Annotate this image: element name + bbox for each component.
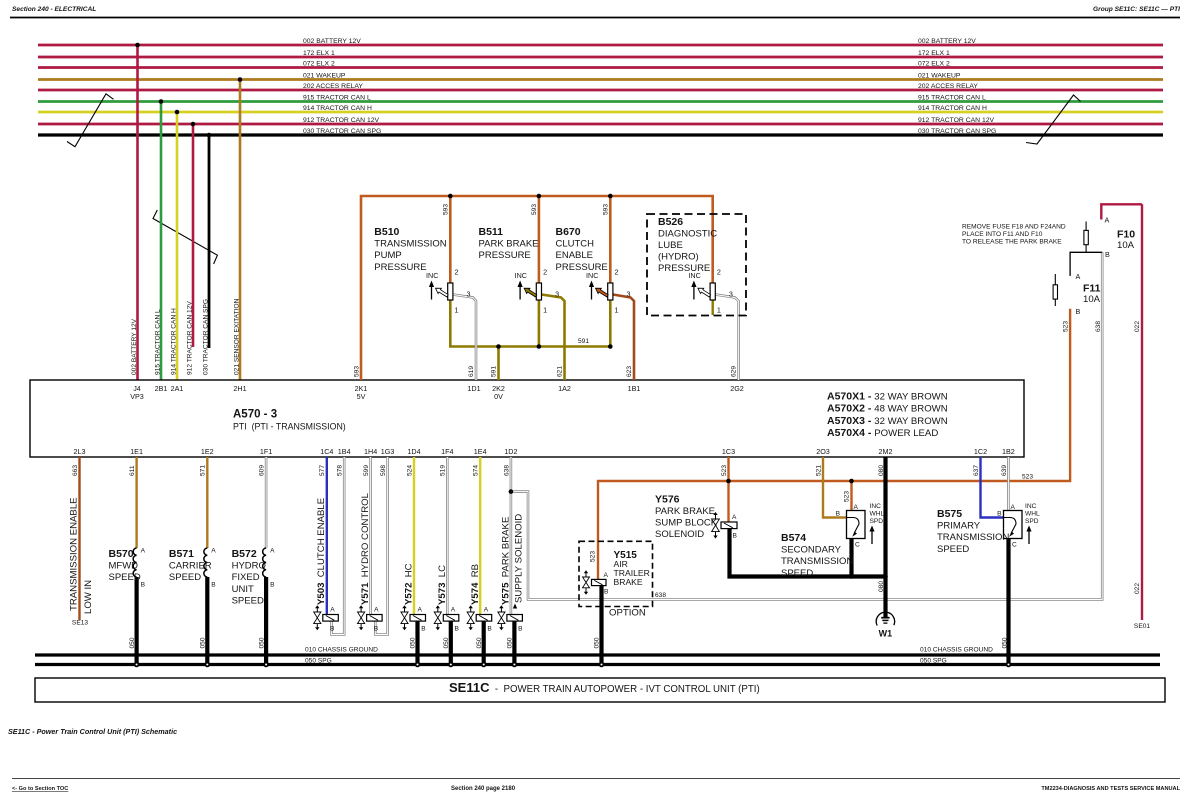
svg-text:1C4: 1C4 bbox=[320, 447, 333, 456]
svg-text:Y576: Y576 bbox=[655, 494, 680, 506]
svg-text:2O3: 2O3 bbox=[816, 447, 830, 456]
svg-text:Y572 HC: Y572 HC bbox=[404, 563, 415, 605]
svg-text:2L3: 2L3 bbox=[74, 447, 86, 456]
svg-text:B: B bbox=[733, 533, 738, 540]
svg-text:523: 523 bbox=[721, 465, 728, 476]
svg-text:10A: 10A bbox=[1117, 240, 1135, 251]
svg-text:OPTION: OPTION bbox=[609, 608, 646, 619]
svg-text:1F1: 1F1 bbox=[260, 447, 272, 456]
svg-text:B: B bbox=[997, 511, 1002, 518]
svg-text:B: B bbox=[487, 626, 492, 633]
svg-text:PLACE INTO F11 AND F10: PLACE INTO F11 AND F10 bbox=[962, 231, 1043, 238]
svg-text:PRIMARY: PRIMARY bbox=[937, 521, 981, 532]
svg-text:021 WAKEUP: 021 WAKEUP bbox=[918, 73, 961, 80]
svg-text:611: 611 bbox=[129, 465, 136, 476]
svg-text:593: 593 bbox=[442, 204, 449, 215]
svg-text:PUMP: PUMP bbox=[374, 250, 401, 261]
svg-text:B: B bbox=[211, 582, 216, 589]
svg-text:521: 521 bbox=[816, 465, 823, 476]
svg-text:SOLENOID: SOLENOID bbox=[655, 529, 704, 540]
svg-text:REMOVE FUSE F18 AND F24AND: REMOVE FUSE F18 AND F24AND bbox=[962, 224, 1066, 231]
svg-text:Y574 RB: Y574 RB bbox=[470, 564, 481, 605]
svg-text:571: 571 bbox=[200, 465, 207, 476]
svg-text:0V: 0V bbox=[494, 392, 503, 401]
svg-text:PARK BRAKE: PARK BRAKE bbox=[479, 239, 539, 250]
svg-text:DIAGNOSTIC: DIAGNOSTIC bbox=[658, 229, 717, 240]
svg-text:599: 599 bbox=[363, 465, 370, 476]
svg-text:ENABLE: ENABLE bbox=[556, 250, 594, 261]
svg-text:B: B bbox=[330, 626, 335, 633]
svg-text:639: 639 bbox=[1001, 465, 1008, 476]
svg-text:SPEED: SPEED bbox=[169, 572, 201, 583]
svg-text:(HYDRO): (HYDRO) bbox=[658, 252, 699, 263]
svg-text:B: B bbox=[270, 582, 275, 589]
svg-text:663: 663 bbox=[72, 465, 79, 476]
svg-text:A570X1 - 32 WAY BROWN: A570X1 - 32 WAY BROWN bbox=[827, 391, 948, 403]
svg-text:1E4: 1E4 bbox=[474, 447, 487, 456]
svg-text:080: 080 bbox=[878, 465, 885, 476]
svg-text:1B2: 1B2 bbox=[1002, 447, 1015, 456]
svg-text:050: 050 bbox=[410, 637, 417, 648]
svg-text:Group SE11C: SE11C — PTI: Group SE11C: SE11C — PTI bbox=[1093, 6, 1180, 13]
svg-text:072 ELX 2: 072 ELX 2 bbox=[918, 61, 950, 68]
svg-text:WHL: WHL bbox=[1025, 511, 1040, 518]
svg-text:SPD: SPD bbox=[870, 518, 884, 525]
svg-text:638: 638 bbox=[503, 465, 510, 476]
svg-text:MFWD: MFWD bbox=[109, 561, 139, 572]
svg-text:1E1: 1E1 bbox=[130, 447, 143, 456]
svg-text:2G2: 2G2 bbox=[730, 384, 744, 393]
svg-text:593: 593 bbox=[602, 204, 609, 215]
svg-text:2: 2 bbox=[717, 268, 721, 277]
svg-text:A: A bbox=[330, 607, 335, 614]
svg-text:B: B bbox=[141, 582, 146, 589]
svg-text:LOW IN: LOW IN bbox=[83, 580, 94, 614]
svg-text:TRANSMISSION: TRANSMISSION bbox=[374, 239, 446, 250]
svg-text:PRESSURE: PRESSURE bbox=[658, 263, 710, 274]
svg-text:030 TRACTOR CAN SPG: 030 TRACTOR CAN SPG bbox=[303, 128, 381, 135]
svg-text:INC: INC bbox=[1025, 503, 1037, 510]
svg-text:Y575 PARK BRAKE: Y575 PARK BRAKE bbox=[501, 517, 512, 605]
svg-text:C: C bbox=[855, 542, 860, 549]
svg-text:SPEED: SPEED bbox=[937, 544, 969, 555]
svg-text:3: 3 bbox=[627, 290, 631, 299]
svg-text:WHL: WHL bbox=[870, 511, 885, 518]
svg-text:598: 598 bbox=[380, 465, 387, 476]
svg-text:B510: B510 bbox=[374, 226, 399, 238]
svg-text:10A: 10A bbox=[1083, 294, 1101, 305]
svg-text:B571: B571 bbox=[169, 548, 194, 560]
svg-text:010 CHASSIS GROUND: 010 CHASSIS GROUND bbox=[920, 647, 993, 654]
svg-text:021 SENSOR EXITATION: 021 SENSOR EXITATION bbox=[234, 298, 241, 375]
svg-text:PRESSURE: PRESSURE bbox=[556, 262, 608, 273]
svg-text:SUPPLY SOLENOID: SUPPLY SOLENOID bbox=[514, 514, 525, 603]
svg-text:B575: B575 bbox=[937, 508, 962, 520]
svg-text:INC: INC bbox=[426, 271, 438, 280]
svg-text:523: 523 bbox=[590, 551, 597, 562]
svg-text:A: A bbox=[418, 607, 423, 614]
svg-text:621: 621 bbox=[557, 366, 564, 377]
svg-text:609: 609 bbox=[259, 465, 266, 476]
svg-text:591: 591 bbox=[578, 338, 589, 345]
svg-text:B: B bbox=[604, 589, 609, 596]
svg-text:593: 593 bbox=[531, 204, 538, 215]
svg-text:SE11C - Power Train Control Un: SE11C - Power Train Control Unit (PTI) S… bbox=[8, 727, 177, 736]
svg-text:A: A bbox=[1011, 504, 1016, 511]
svg-text:BRAKE: BRAKE bbox=[614, 577, 643, 587]
svg-text:TM2234-DIAGNOSIS AND TESTS SER: TM2234-DIAGNOSIS AND TESTS SERVICE MANUA… bbox=[1041, 786, 1180, 792]
svg-text:1D2: 1D2 bbox=[504, 447, 517, 456]
svg-text:INC: INC bbox=[870, 503, 882, 510]
svg-text:637: 637 bbox=[973, 465, 980, 476]
svg-text:030 TRACTOR CAN SPG: 030 TRACTOR CAN SPG bbox=[918, 128, 996, 135]
svg-text:Y573 LC: Y573 LC bbox=[437, 565, 448, 605]
svg-text:1: 1 bbox=[455, 306, 459, 315]
svg-text:UNIT: UNIT bbox=[232, 584, 254, 595]
svg-text:915 TRACTOR CAN L: 915 TRACTOR CAN L bbox=[155, 309, 162, 375]
svg-text:050: 050 bbox=[443, 637, 450, 648]
svg-text:1C3: 1C3 bbox=[722, 447, 735, 456]
svg-text:1B4: 1B4 bbox=[338, 447, 351, 456]
svg-text:3: 3 bbox=[729, 290, 733, 299]
svg-text:1: 1 bbox=[615, 306, 619, 315]
svg-text:2: 2 bbox=[455, 268, 459, 277]
svg-text:A: A bbox=[1105, 216, 1110, 225]
svg-text:523: 523 bbox=[844, 491, 851, 502]
svg-text:1: 1 bbox=[543, 306, 547, 315]
svg-text:F11: F11 bbox=[1083, 283, 1101, 295]
svg-text:080: 080 bbox=[878, 581, 885, 592]
svg-text:050: 050 bbox=[1001, 637, 1008, 648]
svg-text:3: 3 bbox=[467, 290, 471, 299]
svg-text:915 TRACTOR CAN L: 915 TRACTOR CAN L bbox=[918, 95, 986, 102]
svg-text:B: B bbox=[455, 626, 460, 633]
svg-text:W1: W1 bbox=[879, 629, 893, 639]
svg-text:578: 578 bbox=[337, 465, 344, 476]
svg-text:172 ELX 1: 172 ELX 1 bbox=[303, 50, 335, 57]
svg-text:202 ACCES RELAY: 202 ACCES RELAY bbox=[303, 83, 363, 90]
svg-text:A: A bbox=[854, 504, 859, 511]
svg-text:593: 593 bbox=[354, 366, 361, 377]
svg-text:638: 638 bbox=[1095, 321, 1102, 332]
svg-text:SPEED: SPEED bbox=[232, 595, 264, 606]
svg-text:B670: B670 bbox=[556, 226, 581, 238]
svg-text:623: 623 bbox=[626, 366, 633, 377]
svg-text:523: 523 bbox=[1063, 321, 1070, 332]
svg-text:Section 240 - ELECTRICAL: Section 240 - ELECTRICAL bbox=[12, 6, 96, 13]
svg-text:F10: F10 bbox=[1117, 229, 1135, 241]
svg-text:519: 519 bbox=[440, 465, 447, 476]
svg-text:1D4: 1D4 bbox=[407, 447, 420, 456]
svg-text:B: B bbox=[421, 626, 426, 633]
svg-text:002 BATTERY 12V: 002 BATTERY 12V bbox=[303, 38, 361, 45]
svg-text:574: 574 bbox=[473, 465, 480, 476]
svg-text:B572: B572 bbox=[232, 548, 257, 560]
svg-text:A: A bbox=[484, 607, 489, 614]
svg-text:2: 2 bbox=[543, 268, 547, 277]
svg-text:FIXED: FIXED bbox=[232, 572, 260, 583]
svg-text:638: 638 bbox=[655, 592, 666, 599]
svg-text:B: B bbox=[518, 626, 523, 633]
svg-text:619: 619 bbox=[468, 366, 475, 377]
svg-text:Section 240 page 2180: Section 240 page 2180 bbox=[451, 786, 516, 792]
svg-text:A570X3 - 32 WAY BROWN: A570X3 - 32 WAY BROWN bbox=[827, 415, 948, 427]
svg-text:202 ACCES RELAY: 202 ACCES RELAY bbox=[918, 83, 978, 90]
svg-text:022: 022 bbox=[1134, 583, 1141, 594]
svg-text:SPEED: SPEED bbox=[109, 572, 141, 583]
svg-text:010 CHASSIS GROUND: 010 CHASSIS GROUND bbox=[305, 647, 378, 654]
svg-text:CARRIER: CARRIER bbox=[169, 561, 212, 572]
svg-text:A: A bbox=[451, 607, 456, 614]
svg-text:072 ELX 2: 072 ELX 2 bbox=[303, 61, 335, 68]
svg-text:A: A bbox=[732, 514, 737, 521]
svg-text:B570: B570 bbox=[109, 548, 134, 560]
svg-text:B574: B574 bbox=[781, 532, 806, 544]
svg-text:SPD: SPD bbox=[1025, 518, 1039, 525]
svg-text:A: A bbox=[211, 548, 216, 555]
svg-text:TRANSMISSION ENABLE: TRANSMISSION ENABLE bbox=[69, 497, 80, 611]
svg-text:<- Go to Section TOC: <- Go to Section TOC bbox=[12, 786, 68, 792]
svg-text:B: B bbox=[1105, 250, 1110, 259]
svg-text:914 TRACTOR CAN H: 914 TRACTOR CAN H bbox=[171, 308, 178, 375]
svg-text:912 TRACTOR CAN 12V: 912 TRACTOR CAN 12V bbox=[303, 117, 380, 124]
svg-text:CLUTCH: CLUTCH bbox=[556, 239, 595, 250]
svg-text:002 BATTERY 12V: 002 BATTERY 12V bbox=[131, 318, 138, 375]
svg-text:B511: B511 bbox=[479, 226, 504, 238]
svg-text:TO RELEASE THE PARK BRAKE: TO RELEASE THE PARK BRAKE bbox=[962, 239, 1062, 246]
svg-text:1A2: 1A2 bbox=[558, 384, 571, 393]
svg-text:TRANSMISSION: TRANSMISSION bbox=[781, 556, 853, 567]
svg-text:A570X4 - POWER LEAD: A570X4 - POWER LEAD bbox=[827, 427, 938, 439]
svg-text:050: 050 bbox=[200, 637, 207, 648]
svg-text:5V: 5V bbox=[357, 392, 366, 401]
svg-text:SECONDARY: SECONDARY bbox=[781, 545, 842, 556]
svg-text:PARK BRAKE: PARK BRAKE bbox=[655, 506, 715, 517]
svg-text:2: 2 bbox=[615, 268, 619, 277]
svg-text:912 TRACTOR CAN 12V: 912 TRACTOR CAN 12V bbox=[918, 117, 995, 124]
svg-text:B: B bbox=[1076, 307, 1081, 316]
svg-text:577: 577 bbox=[319, 465, 326, 476]
svg-text:PRESSURE: PRESSURE bbox=[374, 262, 426, 273]
svg-text:C: C bbox=[1012, 542, 1017, 549]
svg-text:2B1: 2B1 bbox=[155, 384, 168, 393]
svg-text:A: A bbox=[374, 607, 379, 614]
svg-text:PRESSURE: PRESSURE bbox=[479, 250, 531, 261]
svg-text:HYDRO: HYDRO bbox=[232, 561, 266, 572]
svg-text:050 SPG: 050 SPG bbox=[305, 658, 332, 665]
svg-text:021 WAKEUP: 021 WAKEUP bbox=[303, 73, 346, 80]
svg-text:PTI (PTI - TRANSMISSION): PTI (PTI - TRANSMISSION) bbox=[233, 422, 346, 432]
svg-text:914 TRACTOR CAN H: 914 TRACTOR CAN H bbox=[303, 105, 372, 112]
svg-text:1C2: 1C2 bbox=[974, 447, 987, 456]
svg-text:A: A bbox=[141, 548, 146, 555]
svg-text:1B1: 1B1 bbox=[628, 384, 641, 393]
svg-text:1F4: 1F4 bbox=[441, 447, 453, 456]
svg-text:915 TRACTOR CAN L: 915 TRACTOR CAN L bbox=[303, 95, 371, 102]
svg-text:TRANSMISSION: TRANSMISSION bbox=[937, 532, 1009, 543]
svg-text:INC: INC bbox=[515, 271, 527, 280]
svg-text:914 TRACTOR CAN H: 914 TRACTOR CAN H bbox=[918, 105, 987, 112]
svg-text:A: A bbox=[604, 572, 609, 579]
svg-text:2M2: 2M2 bbox=[879, 447, 893, 456]
svg-text:1E2: 1E2 bbox=[201, 447, 214, 456]
svg-text:2A1: 2A1 bbox=[171, 384, 184, 393]
svg-text:A: A bbox=[1076, 272, 1081, 281]
svg-text:1: 1 bbox=[717, 306, 721, 315]
svg-text:SE01: SE01 bbox=[1134, 623, 1150, 630]
svg-text:1G3: 1G3 bbox=[381, 447, 395, 456]
svg-text:2H1: 2H1 bbox=[233, 384, 246, 393]
svg-text:SUMP BLOCK: SUMP BLOCK bbox=[655, 518, 718, 529]
svg-text:LUBE: LUBE bbox=[658, 240, 683, 251]
svg-text:022: 022 bbox=[1134, 321, 1141, 332]
svg-text:002 BATTERY 12V: 002 BATTERY 12V bbox=[918, 38, 976, 45]
svg-text:050: 050 bbox=[129, 637, 136, 648]
svg-text:629: 629 bbox=[731, 366, 738, 377]
svg-text:SE13: SE13 bbox=[72, 620, 88, 627]
svg-text:SPEED: SPEED bbox=[781, 568, 813, 579]
svg-text:3: 3 bbox=[555, 290, 559, 299]
svg-text:030 TRACTOR CAN SPG: 030 TRACTOR CAN SPG bbox=[203, 299, 210, 375]
svg-text:050: 050 bbox=[507, 637, 514, 648]
svg-text:050: 050 bbox=[594, 637, 601, 648]
svg-text:1H4: 1H4 bbox=[364, 447, 377, 456]
svg-text:Y503 CLUTCH ENABLE: Y503 CLUTCH ENABLE bbox=[316, 498, 327, 605]
svg-text:B526: B526 bbox=[658, 216, 683, 228]
svg-text:172 ELX 1: 172 ELX 1 bbox=[918, 50, 950, 57]
svg-text:B: B bbox=[374, 626, 379, 633]
svg-text:524: 524 bbox=[406, 465, 413, 476]
svg-text:591: 591 bbox=[491, 366, 498, 377]
svg-text:A: A bbox=[270, 548, 275, 555]
svg-text:050: 050 bbox=[476, 637, 483, 648]
svg-text:523: 523 bbox=[1022, 474, 1033, 481]
svg-text:1D1: 1D1 bbox=[467, 384, 480, 393]
svg-text:B: B bbox=[836, 511, 841, 518]
svg-text:A570X2 - 48 WAY BROWN: A570X2 - 48 WAY BROWN bbox=[827, 403, 948, 415]
svg-text:050: 050 bbox=[258, 637, 265, 648]
svg-text:A570 - 3: A570 - 3 bbox=[233, 409, 277, 421]
svg-text:VP3: VP3 bbox=[130, 392, 144, 401]
svg-text:912 TRACTOR CAN 12V: 912 TRACTOR CAN 12V bbox=[187, 301, 194, 375]
svg-text:050 SPG: 050 SPG bbox=[920, 658, 947, 665]
svg-text:Y571 HYDRO CONTROL: Y571 HYDRO CONTROL bbox=[360, 492, 371, 605]
